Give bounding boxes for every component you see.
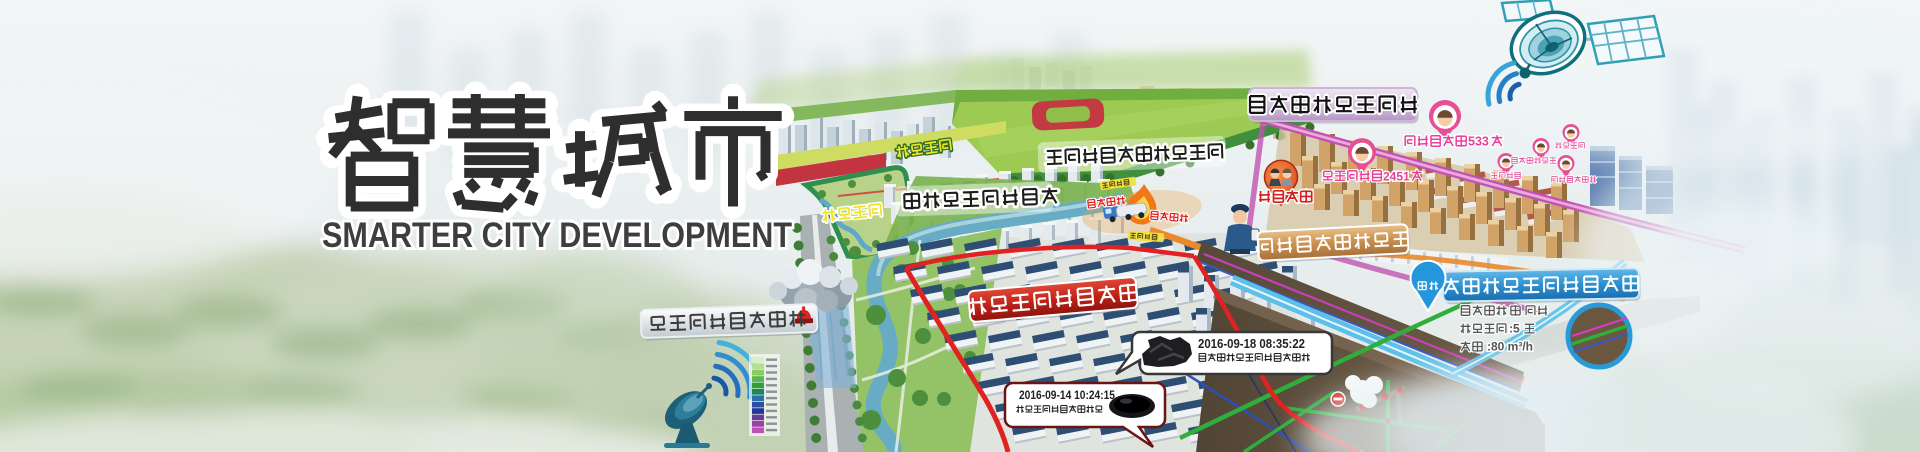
- svg-text:2451: 2451: [1383, 170, 1410, 184]
- svg-text:2016-09-14 10:24:15: 2016-09-14 10:24:15: [1019, 388, 1115, 402]
- svg-text::5: :5: [1509, 322, 1520, 336]
- svg-text::80 m³/h: :80 m³/h: [1487, 340, 1533, 354]
- svg-text:2016-09-18 08:35:22: 2016-09-18 08:35:22: [1198, 337, 1305, 351]
- svg-text:533: 533: [1468, 135, 1489, 149]
- svg-text:SMARTER CITY DEVELOPMENT: SMARTER CITY DEVELOPMENT: [322, 216, 792, 255]
